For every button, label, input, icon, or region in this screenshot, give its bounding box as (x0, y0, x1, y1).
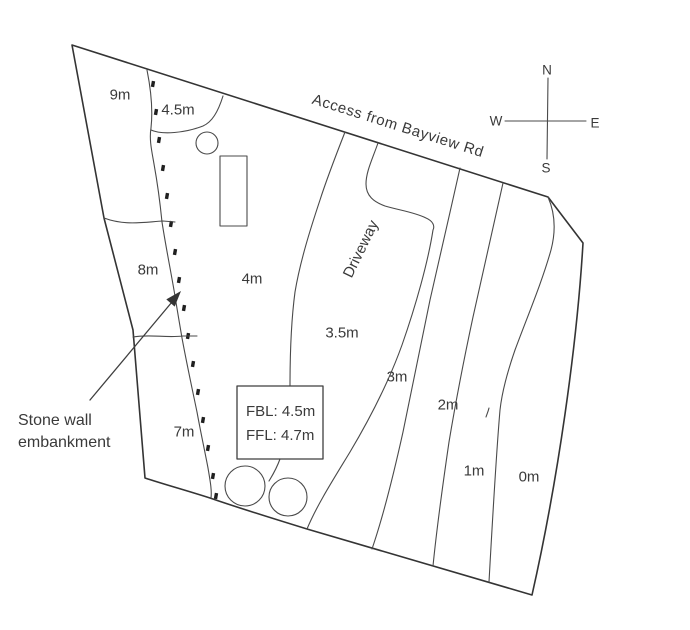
compass-rose: N S W E (490, 63, 600, 176)
annotation-arrowhead-icon (166, 291, 181, 307)
driveway-left-edge (290, 132, 345, 386)
label-0m: 0m (519, 469, 540, 486)
embankment-dot (177, 277, 181, 283)
embankment-dot (196, 389, 200, 395)
label-1m: 1m (464, 463, 485, 480)
embankment-dot (191, 361, 195, 367)
levels-box-fbl: FBL: 4.5m (246, 403, 315, 420)
road-label: Access from Bayview Rd (310, 91, 486, 161)
small-circle (196, 132, 218, 154)
embankment-dot (165, 193, 169, 199)
divider-9m-8m (104, 218, 175, 223)
label-4-5m: 4.5m (161, 102, 194, 119)
contour-line-0m (489, 197, 554, 582)
embankment-dot (206, 445, 210, 451)
site-boundary (72, 45, 583, 595)
embankment-dot (154, 109, 158, 115)
levels-box (237, 386, 323, 459)
label-2m: 2m (438, 397, 459, 414)
compass-ns-axis (547, 78, 548, 159)
driveway-label: Driveway (340, 217, 383, 280)
compass-s: S (541, 161, 550, 176)
embankment-dot (201, 417, 205, 423)
tick-mark (486, 408, 489, 417)
annotation-line2: embankment (18, 434, 111, 451)
annotation-arrow-line (90, 302, 172, 400)
embankment-dot (173, 249, 177, 255)
compass-w: W (490, 114, 503, 129)
levels-box-ffl: FFL: 4.7m (246, 427, 314, 444)
label-9m: 9m (110, 87, 131, 104)
tank-circle-left (225, 466, 265, 506)
tank-circle-right (269, 478, 307, 516)
embankment-dot (151, 81, 155, 87)
embankment-dot (182, 305, 186, 311)
site-plan-canvas: FBL: 4.5m FFL: 4.7m Stone wall embankmen… (0, 0, 690, 630)
embankment-dot (211, 473, 215, 479)
label-4m: 4m (242, 271, 263, 288)
annotation-line1: Stone wall (18, 412, 92, 429)
site-plan-drawing: FBL: 4.5m FFL: 4.7m Stone wall embankmen… (0, 0, 690, 630)
label-3m: 3m (387, 369, 408, 386)
compass-n: N (542, 63, 552, 78)
contour-line-3m (372, 168, 460, 549)
box-connector-line (269, 459, 280, 481)
structure-rectangle (220, 156, 247, 226)
label-3-5m: 3.5m (325, 325, 358, 342)
embankment-dot (161, 165, 165, 171)
embankment-dot (214, 493, 218, 499)
label-8m: 8m (138, 262, 159, 279)
compass-e: E (590, 116, 599, 131)
embankment-dot (157, 137, 161, 143)
label-7m: 7m (174, 424, 195, 441)
